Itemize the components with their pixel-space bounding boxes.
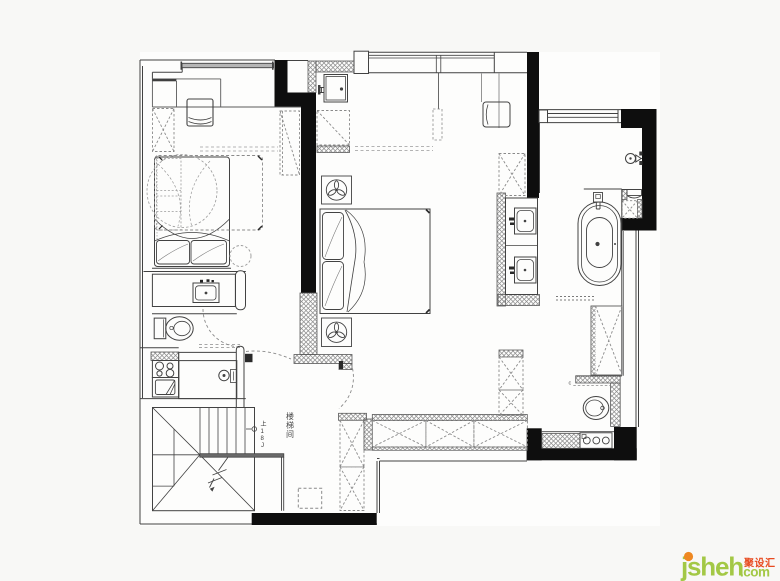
- svg-text:J: J: [261, 443, 264, 449]
- svg-text:间: 间: [286, 430, 294, 439]
- svg-text:梯: 梯: [286, 420, 294, 430]
- svg-text:楼: 楼: [286, 411, 294, 421]
- svg-text:聚设汇: 聚设汇: [743, 557, 776, 570]
- svg-text:上: 上: [261, 420, 267, 428]
- svg-text:c: c: [569, 381, 572, 387]
